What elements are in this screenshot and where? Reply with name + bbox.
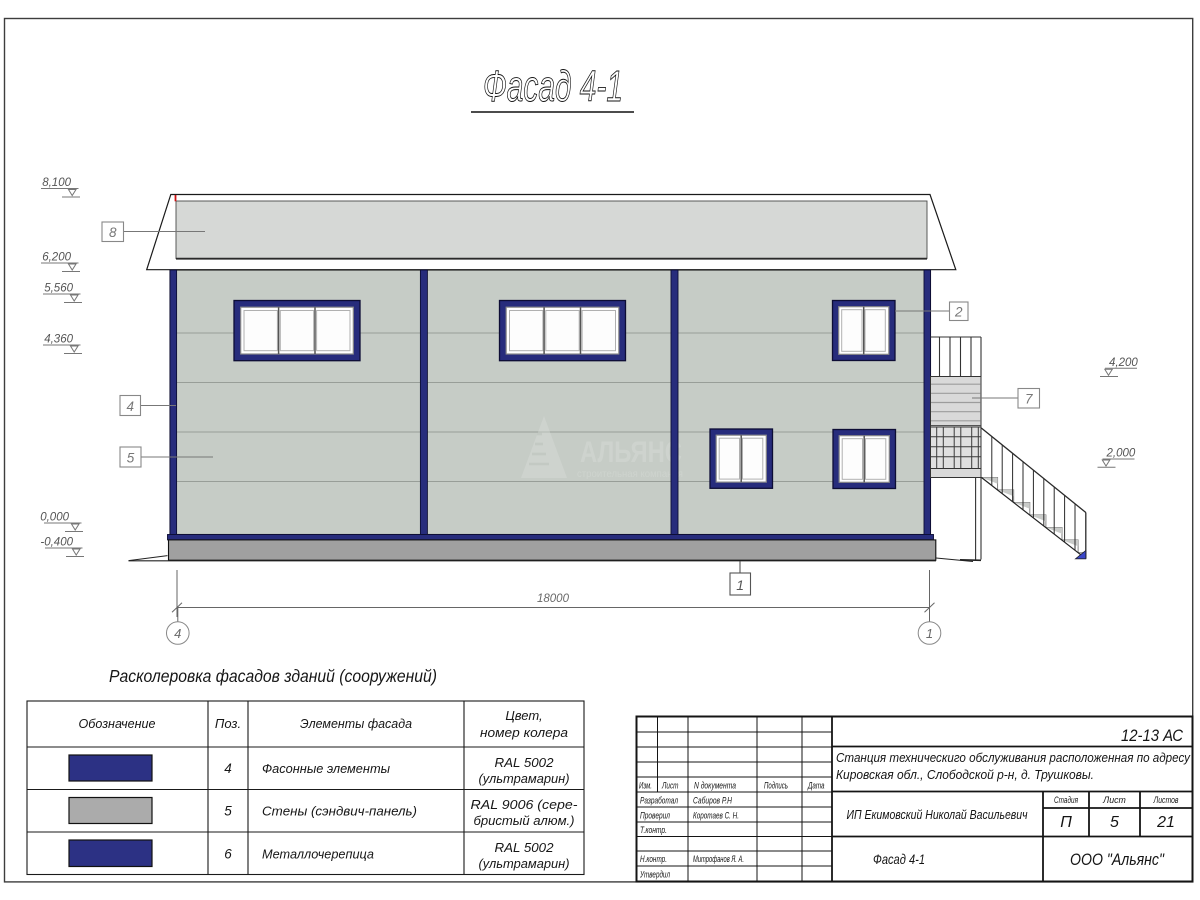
svg-text:Дата: Дата bbox=[807, 781, 824, 791]
svg-text:Т.контр.: Т.контр. bbox=[640, 825, 667, 836]
svg-text:Поз.: Поз. bbox=[215, 716, 241, 731]
svg-text:ИП Екимовский Николай Васильев: ИП Екимовский Николай Васильевич bbox=[847, 807, 1028, 822]
svg-text:2,000: 2,000 bbox=[1106, 448, 1136, 460]
svg-text:Проверил: Проверил bbox=[640, 811, 670, 822]
svg-text:1: 1 bbox=[736, 577, 744, 593]
svg-text:Фасад 4-1: Фасад 4-1 bbox=[483, 62, 623, 111]
svg-text:Расколеровка фасадов зданий (с: Расколеровка фасадов зданий (сооружений) bbox=[109, 666, 437, 686]
svg-text:Листов: Листов bbox=[1153, 795, 1179, 805]
svg-text:ООО "Альянс": ООО "Альянс" bbox=[1070, 851, 1165, 869]
svg-text:0,000: 0,000 bbox=[40, 512, 69, 524]
svg-text:RAL 9006 (сере-: RAL 9006 (сере- bbox=[471, 797, 579, 812]
svg-text:Цвет,: Цвет, bbox=[505, 708, 542, 723]
svg-text:Разработал: Разработал bbox=[640, 796, 678, 807]
svg-text:12-13 АС: 12-13 АС bbox=[1121, 726, 1184, 745]
svg-text:Фасад 4-1: Фасад 4-1 bbox=[873, 851, 925, 867]
svg-text:6: 6 bbox=[224, 847, 232, 862]
svg-text:18000: 18000 bbox=[537, 593, 570, 605]
svg-text:6,200: 6,200 bbox=[42, 252, 71, 264]
svg-text:8,100: 8,100 bbox=[42, 177, 71, 189]
svg-text:Фасонные элементы: Фасонные элементы bbox=[262, 761, 390, 776]
svg-text:4,360: 4,360 bbox=[44, 334, 73, 346]
svg-text:5: 5 bbox=[224, 804, 232, 819]
svg-text:8: 8 bbox=[109, 225, 117, 240]
svg-text:Кировская обл., Слободской р-н: Кировская обл., Слободской р-н, д. Трушк… bbox=[836, 767, 1094, 782]
svg-text:бристый алюм.): бристый алюм.) bbox=[474, 813, 575, 828]
svg-text:4: 4 bbox=[174, 626, 181, 641]
svg-text:Стены (сэндвич-панель): Стены (сэндвич-панель) bbox=[262, 804, 417, 819]
svg-text:1: 1 bbox=[926, 626, 933, 641]
svg-text:Митрофанов Я. А.: Митрофанов Я. А. bbox=[693, 854, 744, 865]
svg-text:Коротаев С. Н.: Коротаев С. Н. bbox=[693, 811, 739, 822]
svg-text:4,200: 4,200 bbox=[1109, 357, 1138, 369]
svg-text:2: 2 bbox=[954, 305, 963, 320]
svg-text:Утвердил: Утвердил bbox=[639, 870, 670, 881]
svg-text:строительная компания: строительная компания bbox=[577, 468, 683, 480]
svg-text:5: 5 bbox=[127, 451, 135, 466]
svg-text:П: П bbox=[1060, 814, 1072, 831]
svg-text:5: 5 bbox=[1110, 814, 1119, 831]
svg-text:-0,400: -0,400 bbox=[40, 537, 73, 549]
svg-text:Металлочерепица: Металлочерепица bbox=[262, 847, 374, 862]
svg-text:Лист: Лист bbox=[1102, 795, 1126, 805]
svg-text:(ультрамарин): (ультрамарин) bbox=[479, 856, 570, 871]
svg-text:Лист: Лист bbox=[661, 781, 679, 791]
svg-text:RAL 5002: RAL 5002 bbox=[495, 755, 555, 770]
svg-text:АЛЬЯНС: АЛЬЯНС bbox=[580, 436, 682, 469]
svg-text:номер колера: номер колера bbox=[480, 725, 568, 740]
svg-text:RAL 5002: RAL 5002 bbox=[495, 840, 555, 855]
svg-text:Н.контр.: Н.контр. bbox=[640, 854, 667, 865]
svg-text:Элементы фасада: Элементы фасада bbox=[300, 716, 412, 731]
svg-text:Стадия: Стадия bbox=[1054, 795, 1078, 805]
svg-text:Сабиров Р.Н: Сабиров Р.Н bbox=[693, 796, 732, 807]
svg-text:N документа: N документа bbox=[694, 781, 736, 791]
svg-text:Станция техническиго обслужива: Станция техническиго обслуживания распол… bbox=[836, 750, 1191, 765]
svg-text:Изм.: Изм. bbox=[639, 781, 652, 791]
svg-text:21: 21 bbox=[1156, 814, 1175, 831]
svg-text:(ультрамарин): (ультрамарин) bbox=[479, 771, 570, 786]
svg-text:4: 4 bbox=[224, 761, 232, 776]
svg-text:7: 7 bbox=[1025, 392, 1033, 407]
svg-text:5,560: 5,560 bbox=[44, 283, 73, 295]
svg-text:4: 4 bbox=[126, 399, 134, 414]
svg-text:Подпись: Подпись bbox=[764, 781, 788, 791]
svg-text:Обозначение: Обозначение bbox=[79, 716, 156, 731]
